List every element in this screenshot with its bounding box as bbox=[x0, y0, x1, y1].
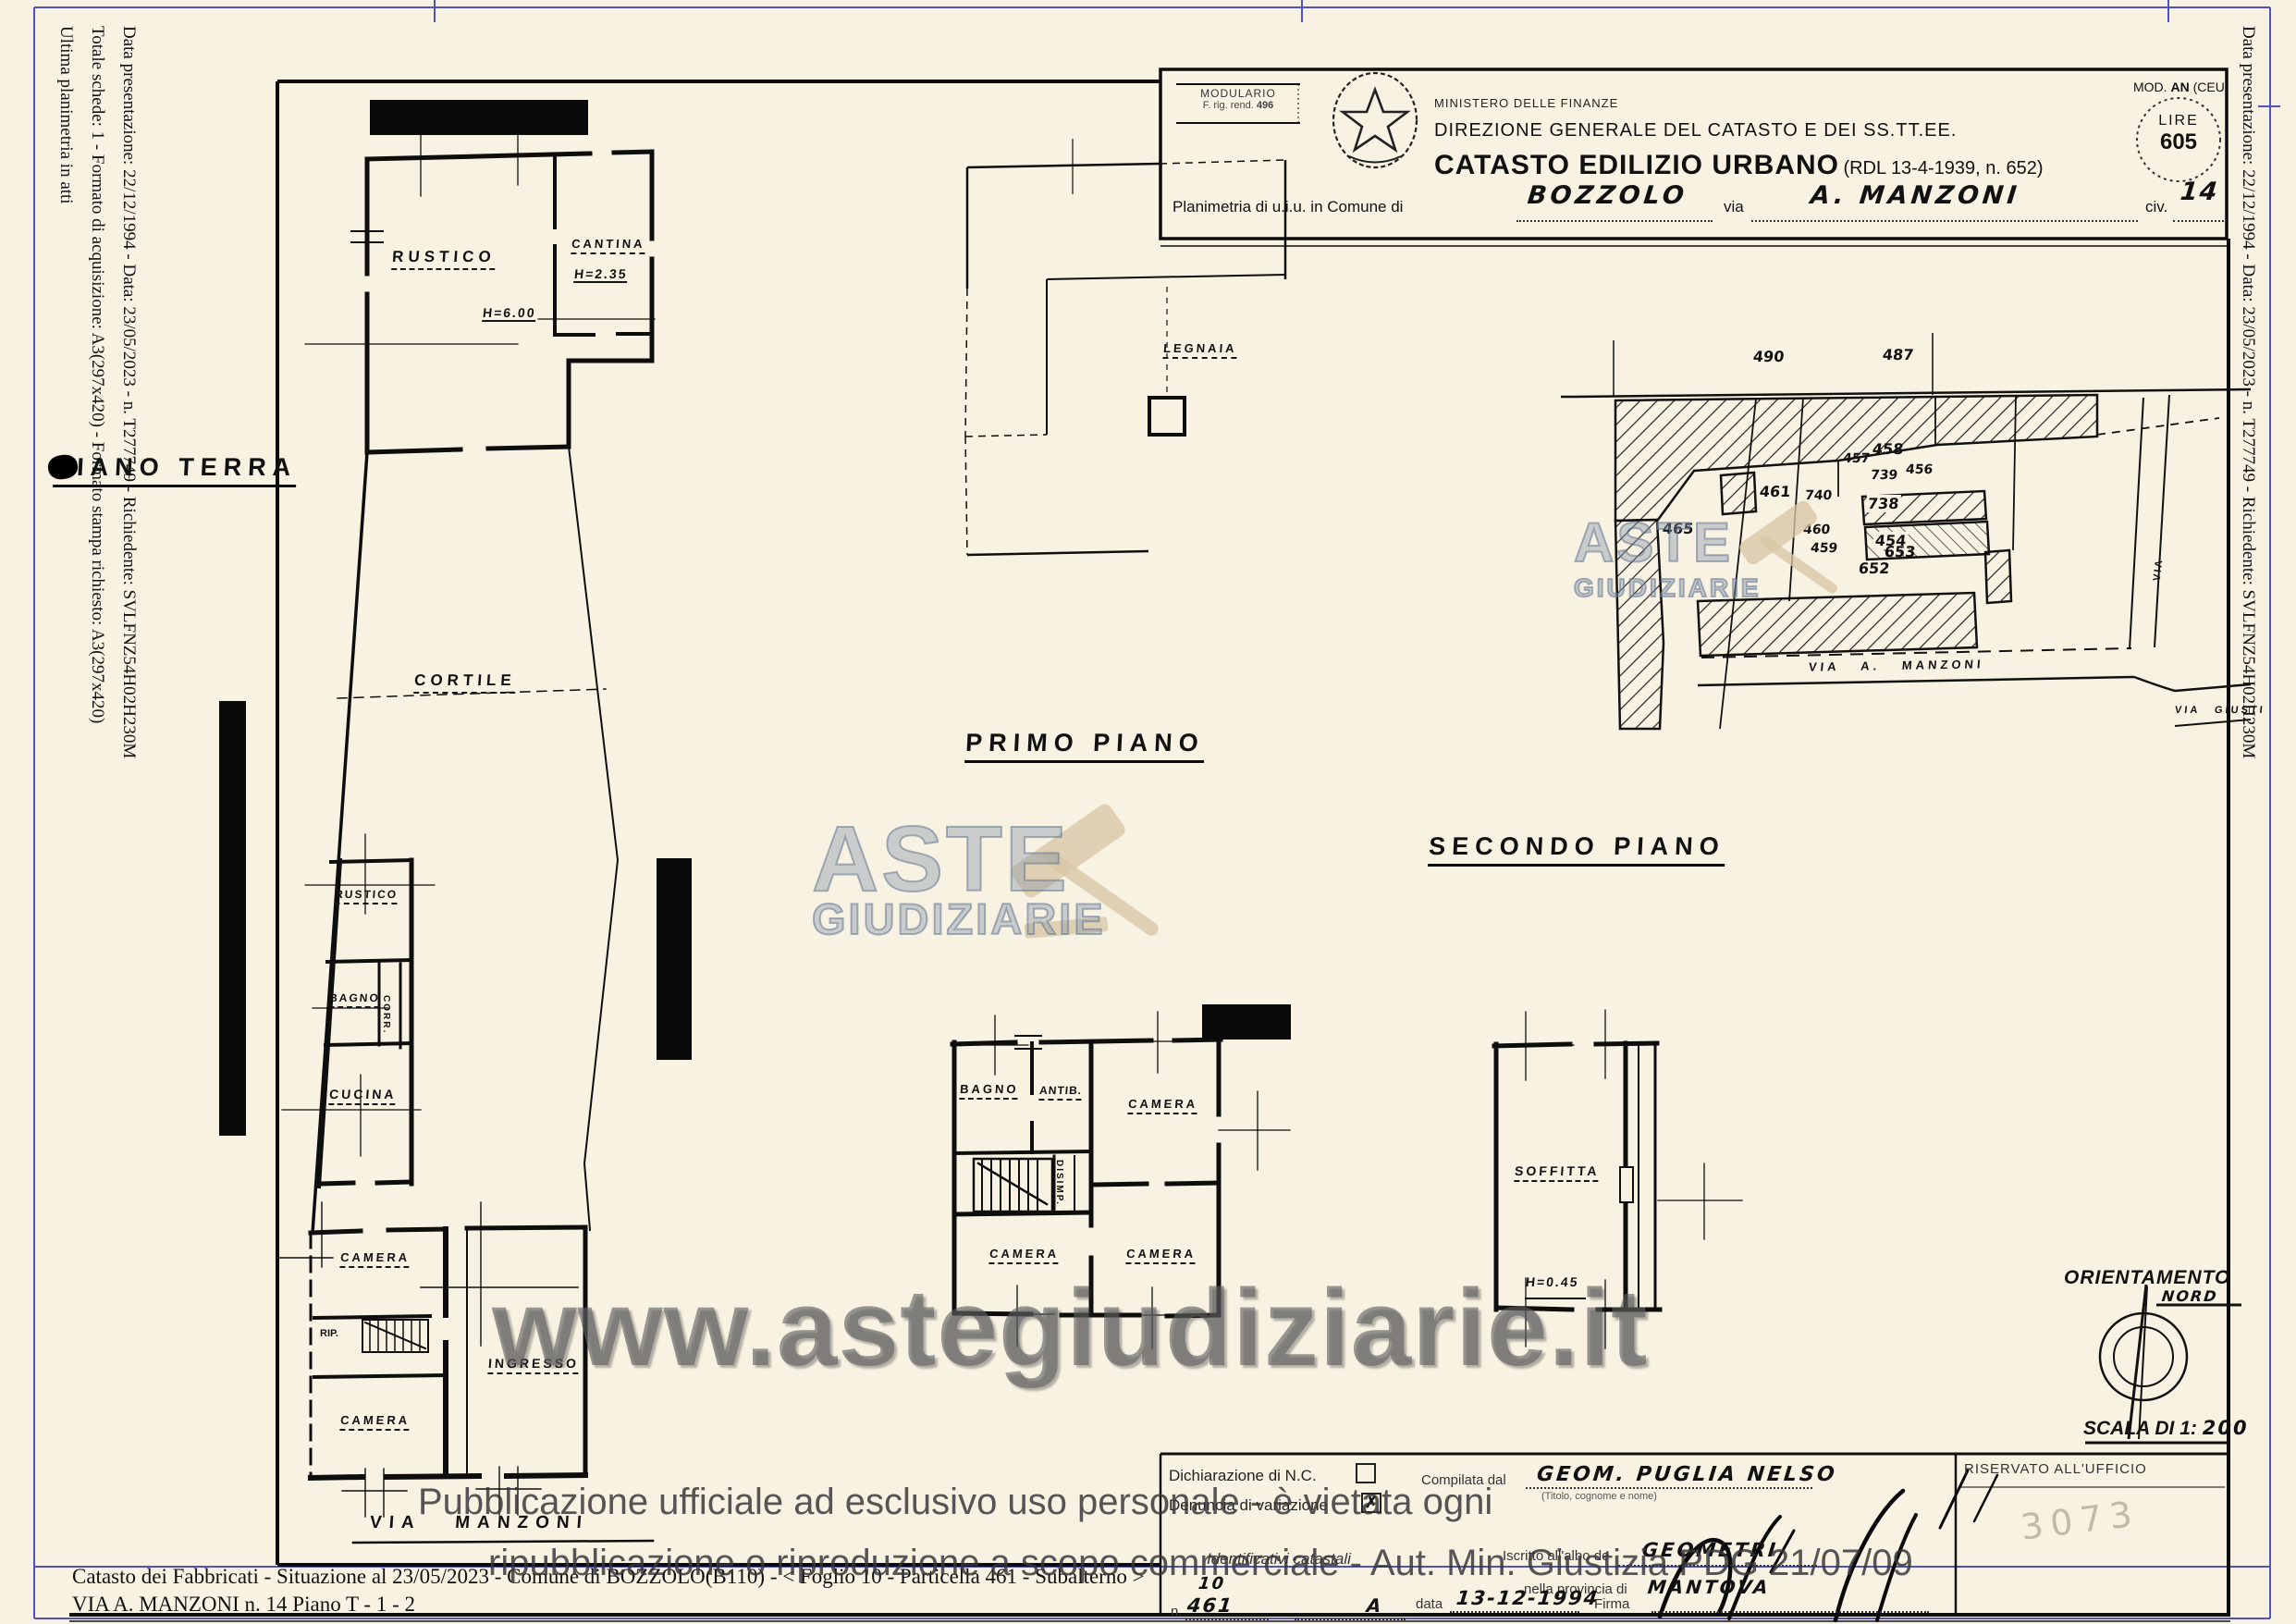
room-cantina: CANTINA bbox=[571, 237, 645, 254]
room-cortile: CORTILE bbox=[413, 671, 516, 694]
room-bagno-pt: BAGNO bbox=[328, 991, 380, 1008]
civ-value: 14 bbox=[2179, 178, 2220, 206]
room-rustico-2: RUSTICO bbox=[334, 888, 398, 904]
room-cucina: CUCINA bbox=[328, 1087, 397, 1105]
watermark-giudiziarie-center: GIUDIZIARIE bbox=[812, 893, 1106, 944]
data-value: 13-12-1994 bbox=[1455, 1587, 1601, 1609]
watermark-notice-1: Pubblicazione ufficiale ad esclusivo uso… bbox=[418, 1482, 1492, 1523]
room-camera-pt-2: CAMERA bbox=[339, 1413, 410, 1431]
margin-note-right: Data presentazione: 22/12/1994 - Data: 2… bbox=[2238, 26, 2258, 758]
room-rustico-top: RUSTICO bbox=[391, 248, 496, 270]
n-line bbox=[1185, 1593, 1269, 1620]
watermark-aste-map: ASTE bbox=[1574, 511, 1733, 574]
parcel-number: 458 bbox=[1872, 440, 1904, 458]
document-title: CATASTO EDILIZIO URBANO (RDL 13-4-1939, … bbox=[1434, 150, 2044, 181]
room-corridoio: CORR. bbox=[381, 995, 391, 1034]
room-camera-1p-nord: CAMERA bbox=[1127, 1097, 1197, 1114]
nord-label: NORD bbox=[2161, 1287, 2219, 1305]
dim-cantina-height: H=2.35 bbox=[573, 266, 628, 283]
civ-label: civ. bbox=[2145, 198, 2167, 216]
room-bagno-1p: BAGNO bbox=[959, 1082, 1019, 1100]
room-soffitta: SOFFITTA bbox=[1514, 1163, 1600, 1182]
watermark-giudiziarie-map: GIUDIZIARIE bbox=[1574, 573, 1762, 603]
parcel-number: 456 bbox=[1905, 462, 1934, 477]
mod-an-label: MOD. AN (CEU) bbox=[2133, 80, 2228, 94]
lire-stamp: LIRE 605 bbox=[2138, 113, 2219, 155]
dim-rustico-height: H=6.00 bbox=[482, 305, 536, 322]
orientamento-label: ORIENTAMENTO bbox=[2064, 1267, 2230, 1289]
redaction-bar bbox=[1202, 1004, 1291, 1040]
sub-line bbox=[1295, 1593, 1406, 1620]
parcel-number: 459 bbox=[1810, 541, 1838, 556]
cadastral-floorplan-sheet: Ultima planimetria in atti Totale schede… bbox=[0, 0, 2296, 1624]
parcel-number: 490 bbox=[1752, 348, 1785, 365]
parcel-number: 739 bbox=[1870, 468, 1898, 483]
compilata-value: GEOM. PUGLIA NELSO bbox=[1536, 1463, 1838, 1486]
redaction-bar bbox=[370, 100, 588, 135]
comune-value: BOZZOLO bbox=[1526, 181, 1688, 210]
room-ripostiglio: RIP. bbox=[320, 1328, 338, 1339]
parcel-number: 652 bbox=[1858, 560, 1890, 577]
n-label: n. bbox=[1171, 1604, 1183, 1619]
margin-note-left-1: Data presentazione: 22/12/1994 - Data: 2… bbox=[118, 26, 139, 758]
room-disimpegno: DISIMP. bbox=[1054, 1160, 1064, 1206]
room-legnaia: LEGNAIA bbox=[1162, 341, 1237, 359]
modulario-line1: MODULARIO bbox=[1176, 87, 1300, 100]
piano-terra-title: PIANO TERRA bbox=[53, 453, 298, 487]
primo-piano-title: PRIMO PIANO bbox=[964, 729, 1205, 763]
parcel-number: 487 bbox=[1882, 346, 1914, 363]
firma-line bbox=[1651, 1585, 1929, 1613]
map-street-giusti: VIA GIUSTI bbox=[2174, 705, 2265, 716]
ministry-line1: MINISTERO DELLE FINANZE bbox=[1434, 96, 1618, 110]
redaction-bar bbox=[657, 858, 692, 1060]
room-camera-pt-1: CAMERA bbox=[339, 1250, 410, 1268]
parcel-number: 457 bbox=[1842, 451, 1871, 466]
via-value: A. MANZONI bbox=[1809, 181, 2021, 210]
room-camera-1p-sud: CAMERA bbox=[1125, 1247, 1196, 1264]
footer-line-2: VIA A. MANZONI n. 14 Piano T - 1 - 2 bbox=[72, 1593, 415, 1617]
data-label: data bbox=[1416, 1596, 1443, 1612]
secondo-piano-title: SECONDO PIANO bbox=[1428, 832, 1725, 867]
sub-value: A bbox=[1366, 1594, 1384, 1617]
modulario-line2: F. rig. rend. 496 bbox=[1176, 100, 1300, 111]
via-label: via bbox=[1724, 198, 1744, 216]
redaction-bar bbox=[219, 701, 246, 1136]
planimetria-prefix: Planimetria di u.i.u. in Comune di bbox=[1173, 198, 1403, 216]
modulario-box: MODULARIO F. rig. rend. 496 bbox=[1176, 87, 1300, 111]
parcel-number: 738 bbox=[1865, 495, 1901, 512]
compilata-note: (Titolo, cognome e nome) bbox=[1541, 1491, 1657, 1502]
riservato-ufficio-label: RISERVATO ALL'UFFICIO bbox=[1964, 1461, 2147, 1477]
ministry-line2: DIREZIONE GENERALE DEL CATASTO E DEI SS.… bbox=[1434, 120, 1957, 141]
parcel-number: 653 bbox=[1884, 543, 1916, 560]
watermark-notice-2: ripubblicazione o riproduzione a scopo c… bbox=[488, 1543, 1913, 1584]
margin-note-left-2: Totale schede: 1 - Formato di acquisizio… bbox=[87, 26, 107, 723]
watermark-url: www.astegiudiziarie.it bbox=[492, 1265, 1648, 1391]
firma-label: Firma bbox=[1594, 1596, 1629, 1612]
scala-label: SCALA DI 1: 200 bbox=[2083, 1417, 2249, 1440]
dichiarazione-nc-checkbox bbox=[1356, 1463, 1376, 1483]
room-antibagno: ANTIB. bbox=[1038, 1084, 1082, 1101]
room-camera-1p-ovest: CAMERA bbox=[988, 1247, 1059, 1264]
margin-note-left-3: Ultima planimetria in atti bbox=[55, 26, 76, 204]
parcel-number: 740 bbox=[1804, 488, 1833, 503]
parcel-number: 461 bbox=[1759, 483, 1791, 500]
